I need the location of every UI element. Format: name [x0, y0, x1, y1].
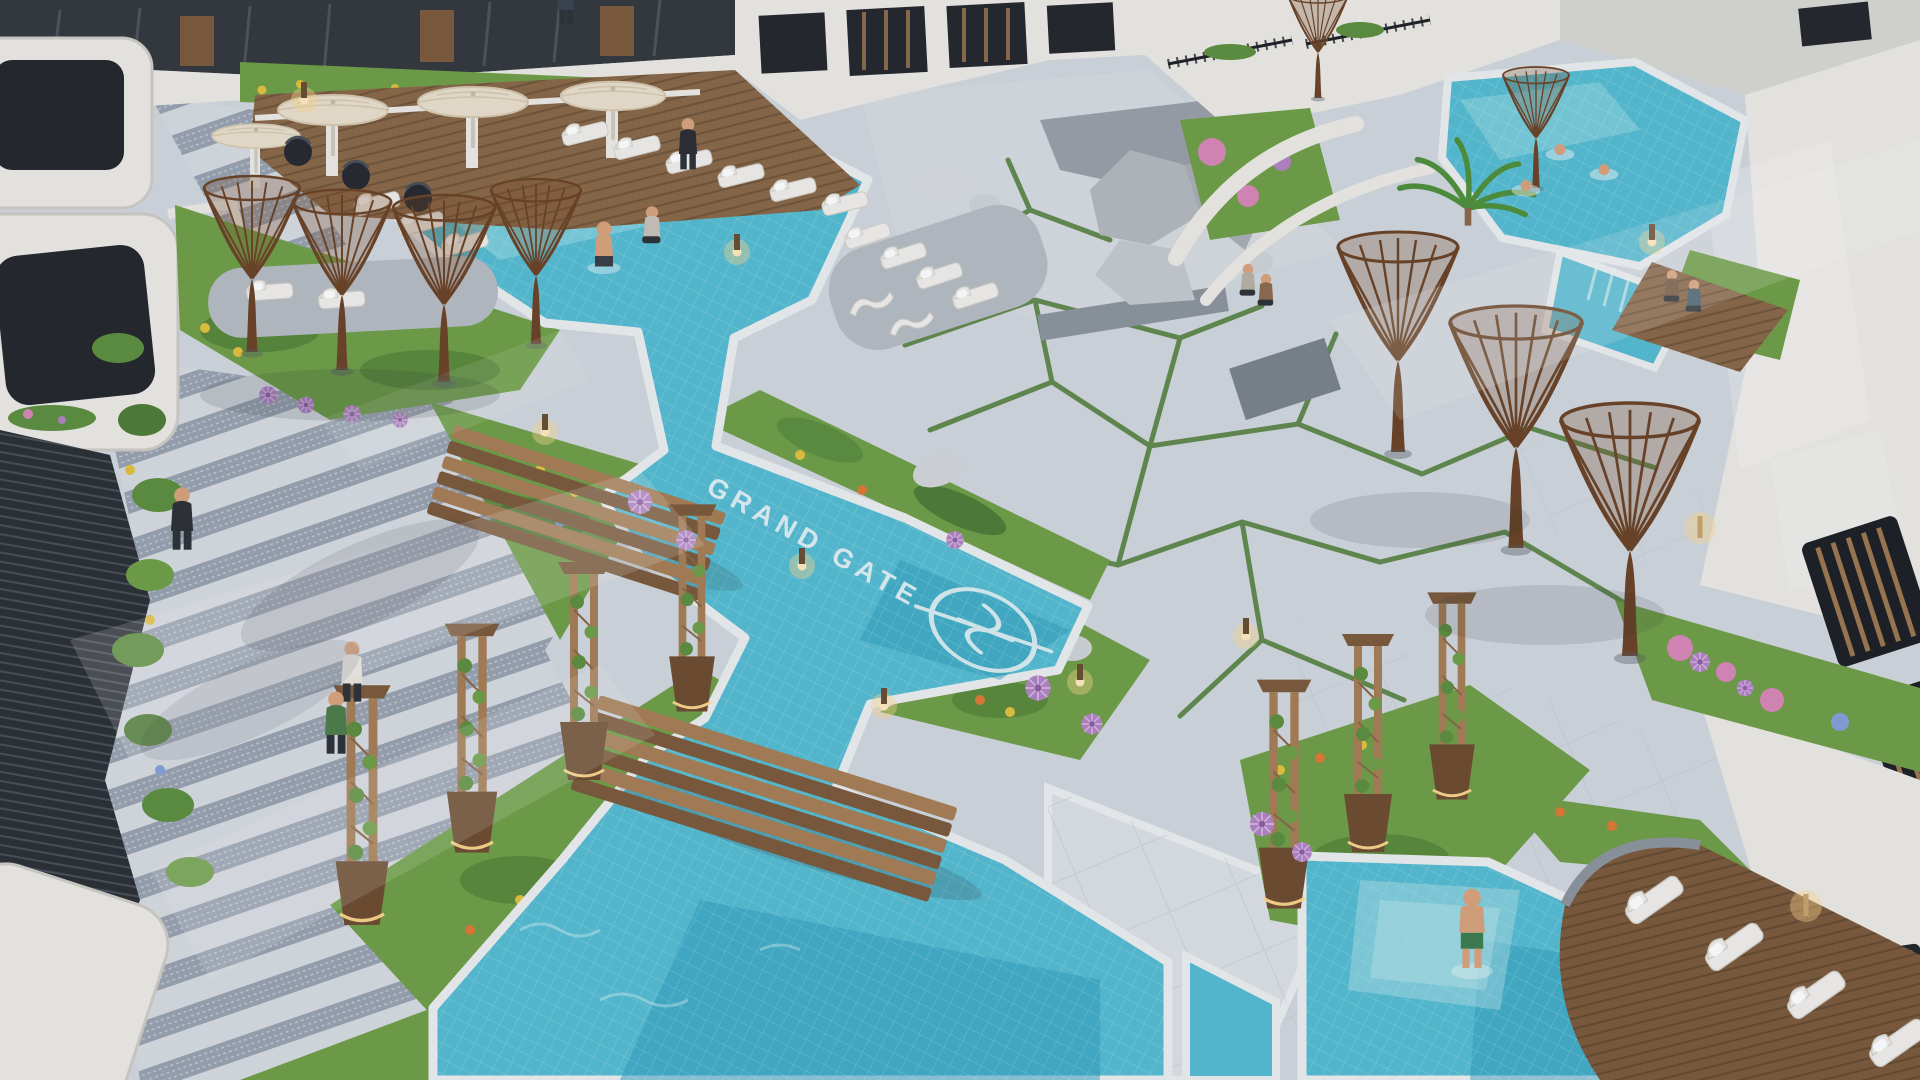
scene-aerial-render: GRAND GATE — [0, 0, 1920, 1080]
courtyard-illustration: GRAND GATE — [0, 0, 1920, 1080]
light-and-shadow — [0, 0, 1920, 1080]
